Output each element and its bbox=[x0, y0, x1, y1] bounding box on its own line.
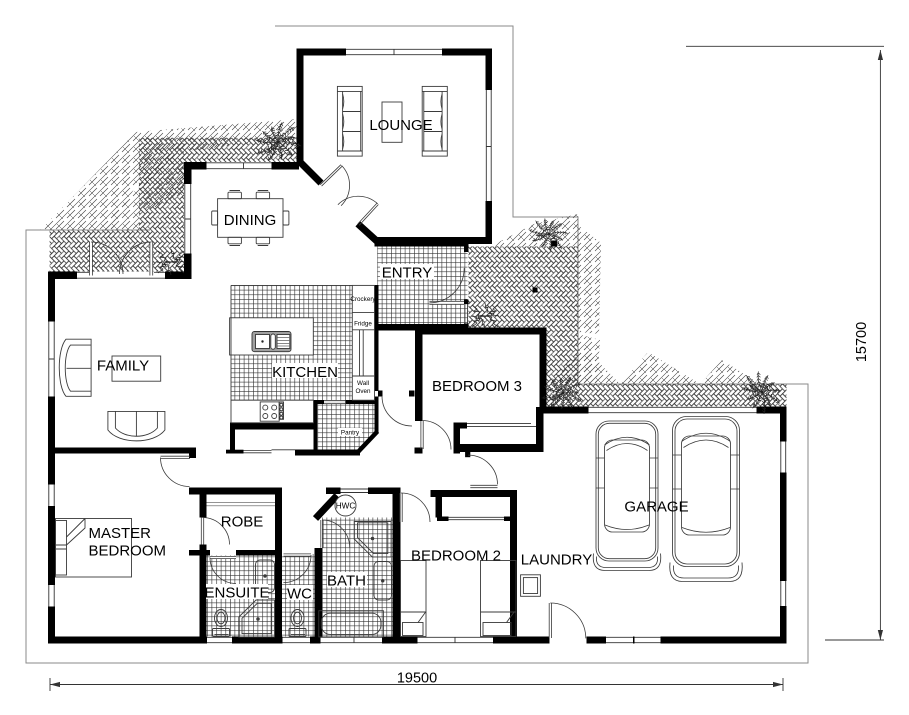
svg-text:BATH: BATH bbox=[327, 573, 366, 590]
svg-text:MASTER: MASTER bbox=[89, 525, 152, 542]
svg-text:19500: 19500 bbox=[397, 671, 437, 687]
svg-text:Wall: Wall bbox=[357, 380, 369, 387]
svg-text:Fridge: Fridge bbox=[354, 321, 372, 328]
svg-text:GARAGE: GARAGE bbox=[624, 499, 688, 516]
svg-text:BEDROOM 3: BEDROOM 3 bbox=[432, 378, 522, 395]
svg-text:KITCHEN: KITCHEN bbox=[272, 364, 338, 381]
svg-text:WC: WC bbox=[287, 586, 312, 603]
svg-text:FAMILY: FAMILY bbox=[97, 358, 149, 375]
svg-text:ENTRY: ENTRY bbox=[382, 265, 433, 282]
svg-text:ROBE: ROBE bbox=[221, 514, 264, 531]
svg-text:Pantry: Pantry bbox=[341, 430, 360, 437]
svg-text:DINING: DINING bbox=[224, 212, 277, 229]
svg-text:Oven: Oven bbox=[355, 388, 371, 395]
svg-text:ENSUITE: ENSUITE bbox=[204, 585, 269, 602]
svg-text:HWC: HWC bbox=[336, 502, 356, 511]
svg-text:BEDROOM 2: BEDROOM 2 bbox=[411, 548, 501, 565]
svg-text:BEDROOM: BEDROOM bbox=[89, 543, 167, 560]
svg-text:15700: 15700 bbox=[854, 322, 870, 362]
svg-text:LOUNGE: LOUNGE bbox=[369, 117, 432, 134]
svg-text:LAUNDRY: LAUNDRY bbox=[521, 552, 592, 569]
svg-text:Crockery: Crockery bbox=[350, 296, 376, 303]
